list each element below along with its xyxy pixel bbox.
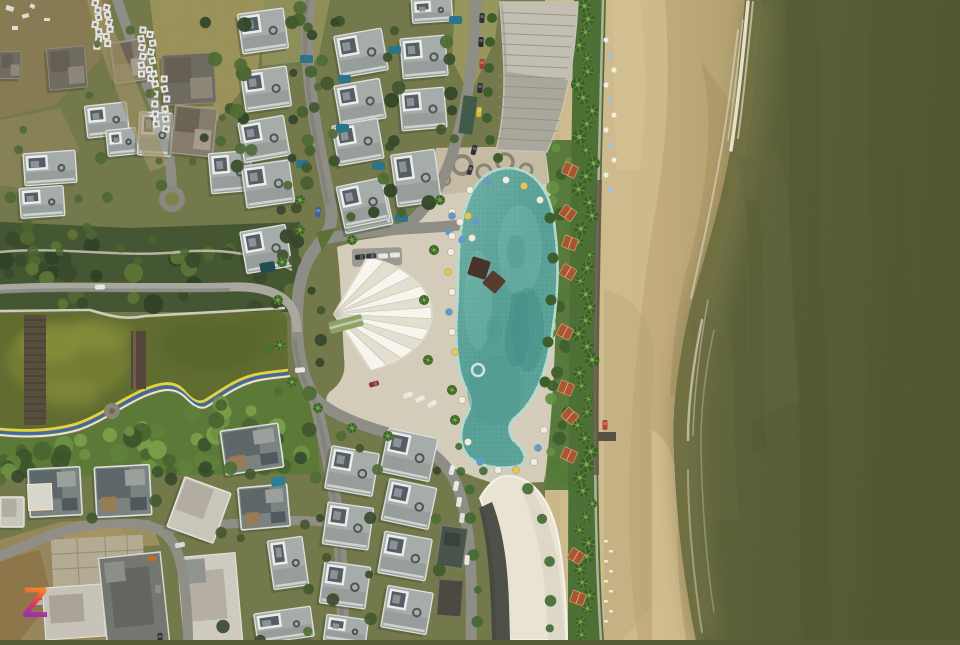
svg-text:Z: Z <box>22 579 48 627</box>
